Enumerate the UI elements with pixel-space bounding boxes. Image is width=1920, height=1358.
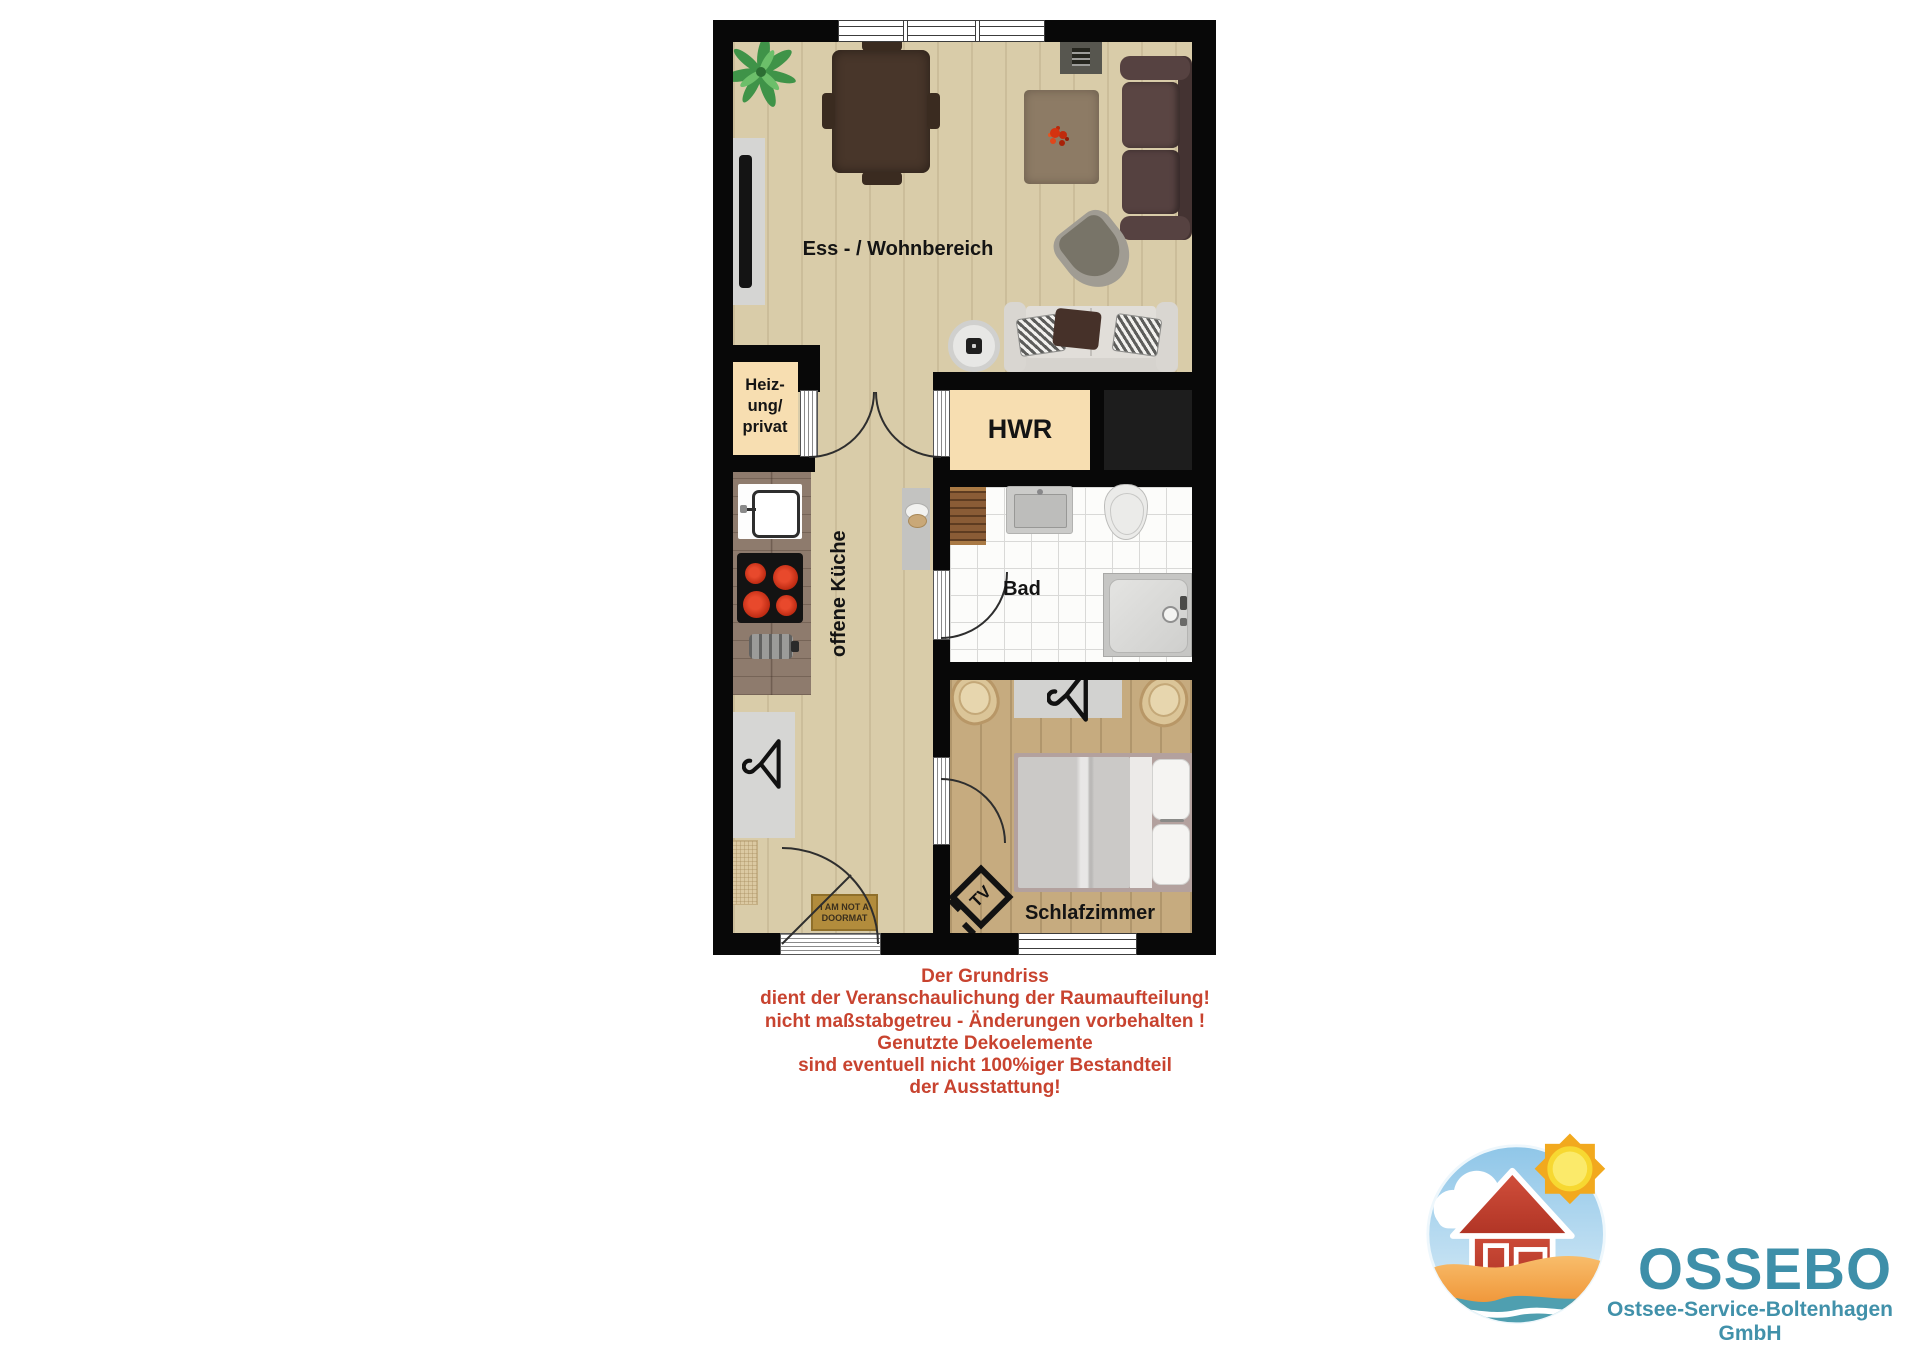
disclaimer-line: Der Grundriss xyxy=(660,966,1310,988)
label-hwr: HWR xyxy=(950,414,1090,445)
label-living: Ess - / Wohnbereich xyxy=(788,238,1008,261)
door-swing-arcs xyxy=(713,20,1216,955)
floorplan-page: I AM NOT A DOORMAT xyxy=(0,0,1920,1358)
disclaimer-line: sind eventuell nicht 100%iger Bestandtei… xyxy=(660,1055,1310,1077)
disclaimer-line: der Ausstattung! xyxy=(660,1077,1310,1099)
label-schlafzimmer: Schlafzimmer xyxy=(1015,902,1165,925)
disclaimer-line: nicht maßstabgetreu - Änderungen vorbeha… xyxy=(660,1011,1310,1033)
label-heizung: Heiz- ung/ privat xyxy=(731,375,799,438)
sun-icon xyxy=(1535,1134,1606,1205)
disclaimer-text: Der Grundriss dient der Veranschaulichun… xyxy=(660,966,1310,1100)
label-kueche: offene Küche xyxy=(828,524,858,664)
label-bad: Bad xyxy=(992,578,1052,601)
ossebo-logo-name: OSSEBO xyxy=(1622,1236,1908,1303)
disclaimer-line: dient der Veranschaulichung der Raumauft… xyxy=(660,988,1310,1010)
ossebo-logo-subtitle: Ostsee-Service-Boltenhagen GmbH xyxy=(1592,1298,1908,1346)
label-heizung-line1: Heiz- xyxy=(731,375,799,396)
label-heizung-line2: ung/ xyxy=(731,396,799,417)
label-heizung-line3: privat xyxy=(731,417,799,438)
water-wave xyxy=(1424,1294,1616,1342)
ossebo-logo-emblem xyxy=(1424,1130,1616,1342)
disclaimer-line: Genutzte Dekoelemente xyxy=(660,1033,1310,1055)
